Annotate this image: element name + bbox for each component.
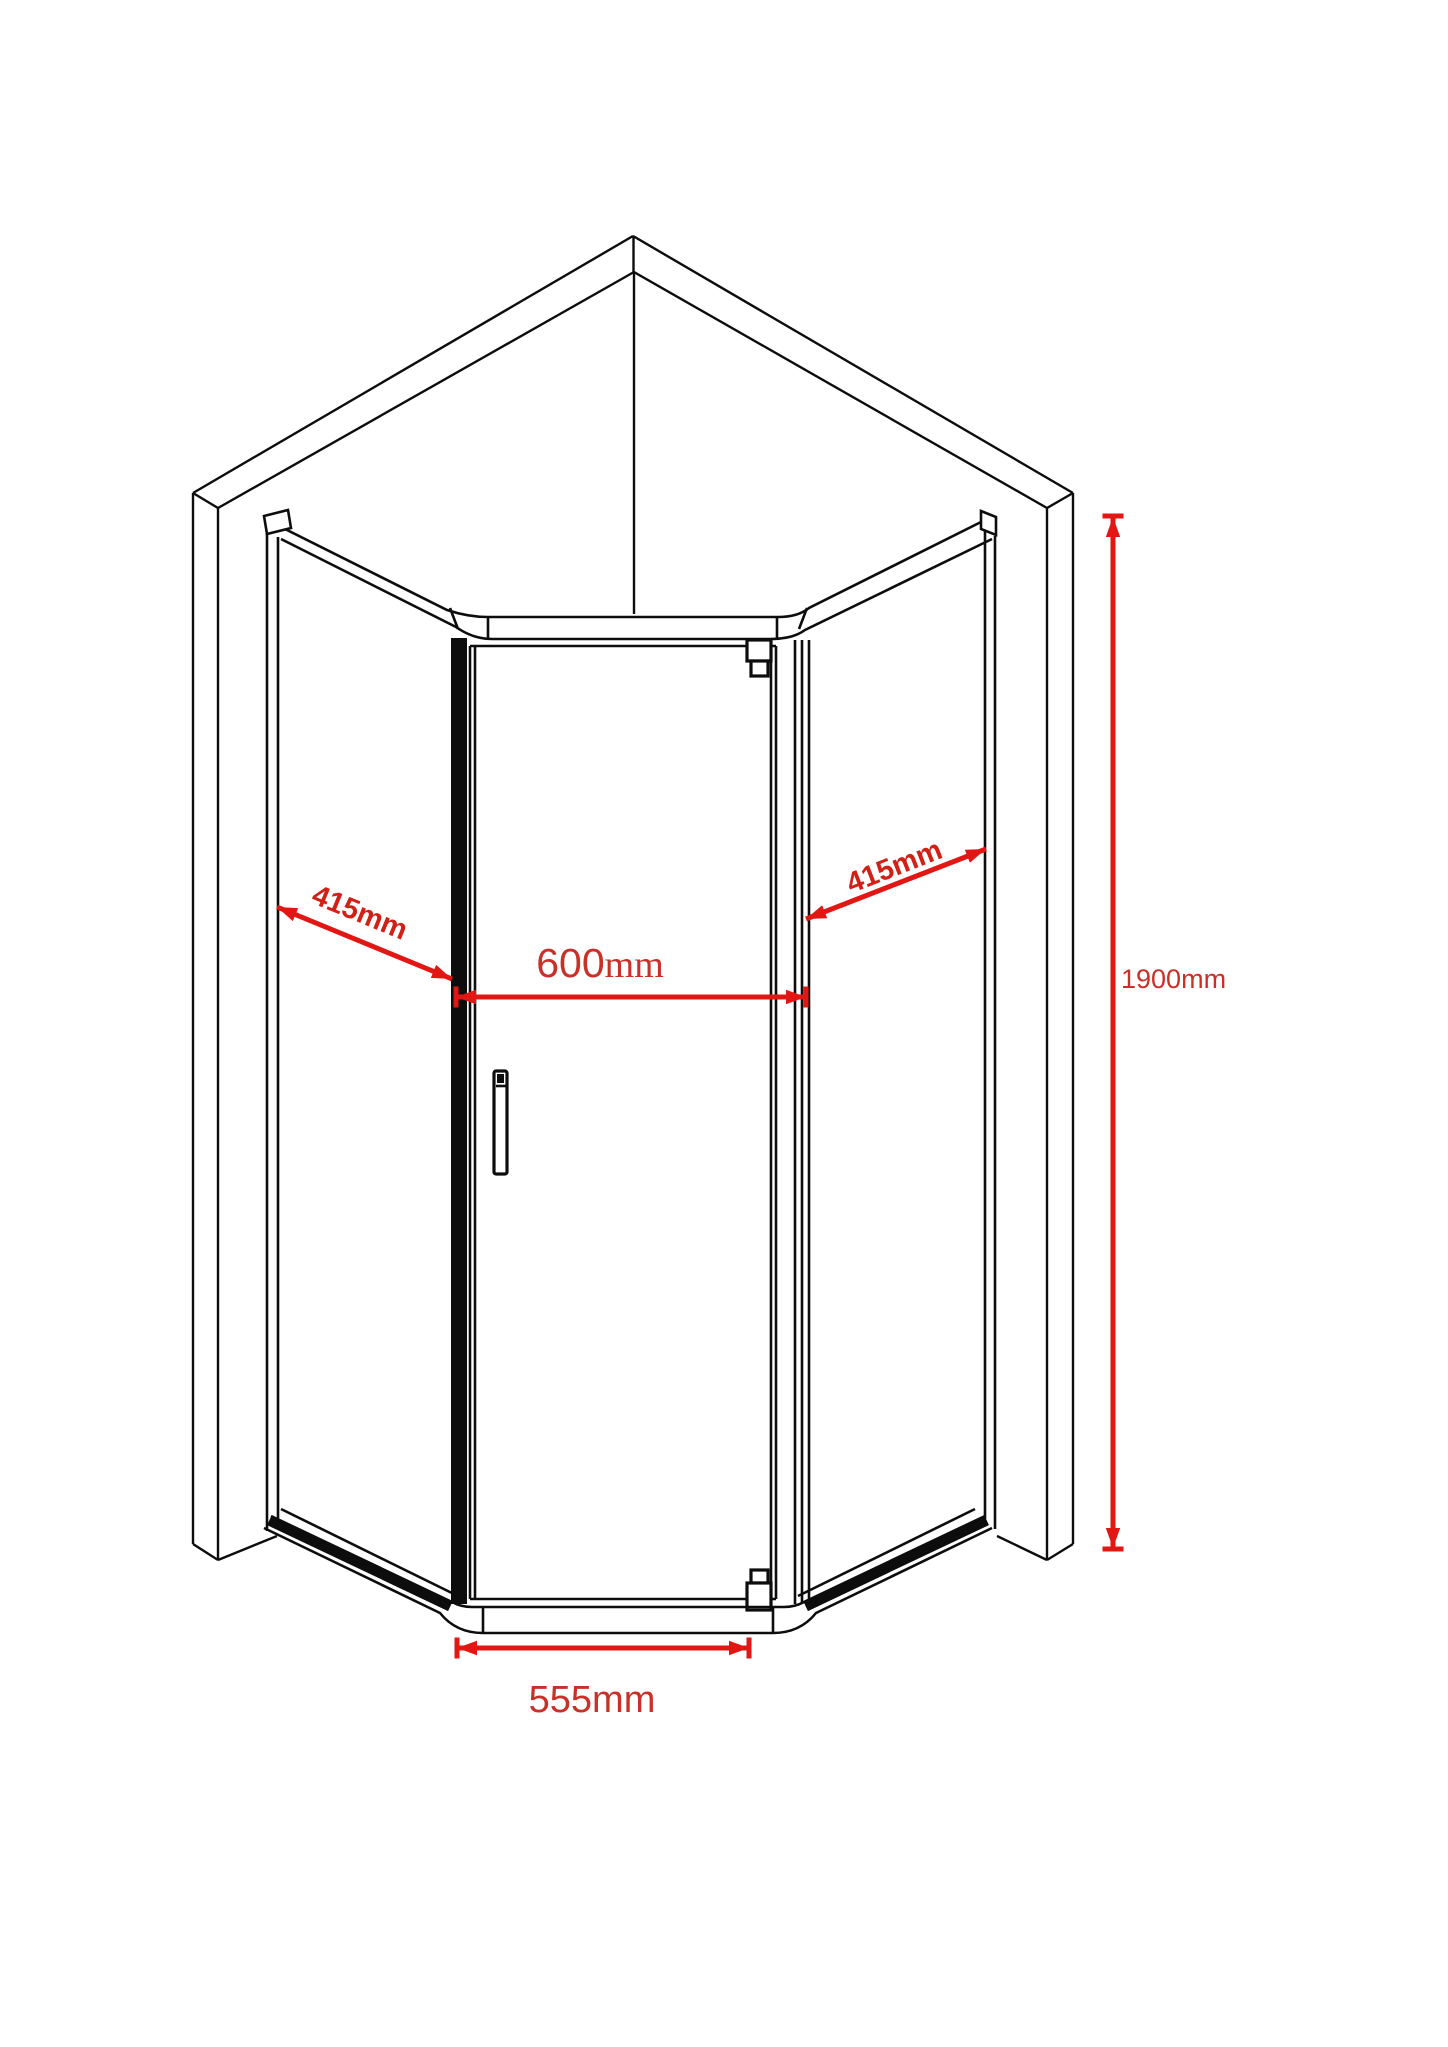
dimension-right-side-arrow-end [965, 849, 986, 863]
bottom-rail-inner-contour [271, 1516, 985, 1607]
dimension-height-arrow-top [1106, 517, 1120, 537]
top-rail-outer-contour [267, 520, 985, 617]
top-rail-inner-contour [281, 539, 992, 639]
dimension-height: 1900mm [1103, 516, 1227, 1549]
shower-enclosure-diagram: 415mm 415mm 600mm 555mm [0, 0, 1448, 2047]
dimension-left-side-arrow-end [431, 965, 452, 979]
bottom-rail-right-band [806, 1521, 987, 1607]
shower-door [451, 638, 809, 1610]
dimensions: 415mm 415mm 600mm 555mm [277, 516, 1226, 1721]
top-hinge-plate [747, 640, 771, 661]
top-frame-rail [267, 520, 992, 639]
left-wall-end-top-edge [193, 493, 218, 508]
left-wall-top-outer-edge [193, 236, 633, 493]
dimension-base-width-arrow-left [457, 1641, 477, 1655]
bottom-rail-left-band [269, 1521, 450, 1607]
right-wall-end-bottom-edge [1047, 1544, 1073, 1560]
dimension-height-arrow-bottom [1106, 1528, 1120, 1548]
drawing-canvas: 415mm 415mm 600mm 555mm [0, 0, 1448, 2047]
left-wall-top-inner-edge [218, 272, 634, 508]
bottom-hinge-pin [751, 1570, 768, 1583]
left-wall-floor-line [218, 1536, 277, 1560]
right-wall-floor-line [997, 1536, 1047, 1560]
dimension-base-width-label: 555mm [529, 1679, 656, 1721]
dimension-left-side-arrow-start [277, 907, 298, 921]
dimension-base-width: 555mm [457, 1638, 749, 1722]
right-side-panel [981, 511, 996, 1529]
right-wall-top-outer-edge [633, 236, 1073, 493]
bottom-hinge [747, 1570, 771, 1610]
door-handle [494, 1071, 507, 1174]
top-hinge-pin [751, 661, 768, 676]
dimension-height-label: 1900mm [1121, 964, 1226, 994]
dimension-left-side-label: 415mm [307, 879, 412, 947]
dimension-left-side: 415mm [277, 879, 452, 979]
dimension-door-width: 600mm [456, 940, 806, 1008]
right-panel-top-cap [981, 511, 996, 535]
dimension-right-side-label: 415mm [842, 834, 947, 900]
right-wall-end-top-edge [1047, 493, 1073, 508]
left-glass-bottom-line [281, 1509, 458, 1596]
door-left-frame-post [451, 638, 467, 1604]
right-wall-top-inner-edge [634, 272, 1047, 508]
shower-enclosure [264, 510, 996, 1633]
bottom-frame-rail [264, 1509, 992, 1633]
dimension-base-width-arrow-right [729, 1641, 749, 1655]
door-handle-mount [497, 1074, 504, 1083]
left-side-panel [264, 510, 291, 1531]
dimension-right-side: 415mm [806, 834, 986, 919]
left-wall-end-bottom-edge [193, 1544, 218, 1560]
bottom-rail-outer-contour [264, 1528, 992, 1633]
top-hinge [747, 640, 771, 676]
left-wall [193, 236, 634, 1560]
right-glass-bottom-line [798, 1509, 975, 1596]
dimension-door-width-label: 600mm [536, 940, 664, 986]
